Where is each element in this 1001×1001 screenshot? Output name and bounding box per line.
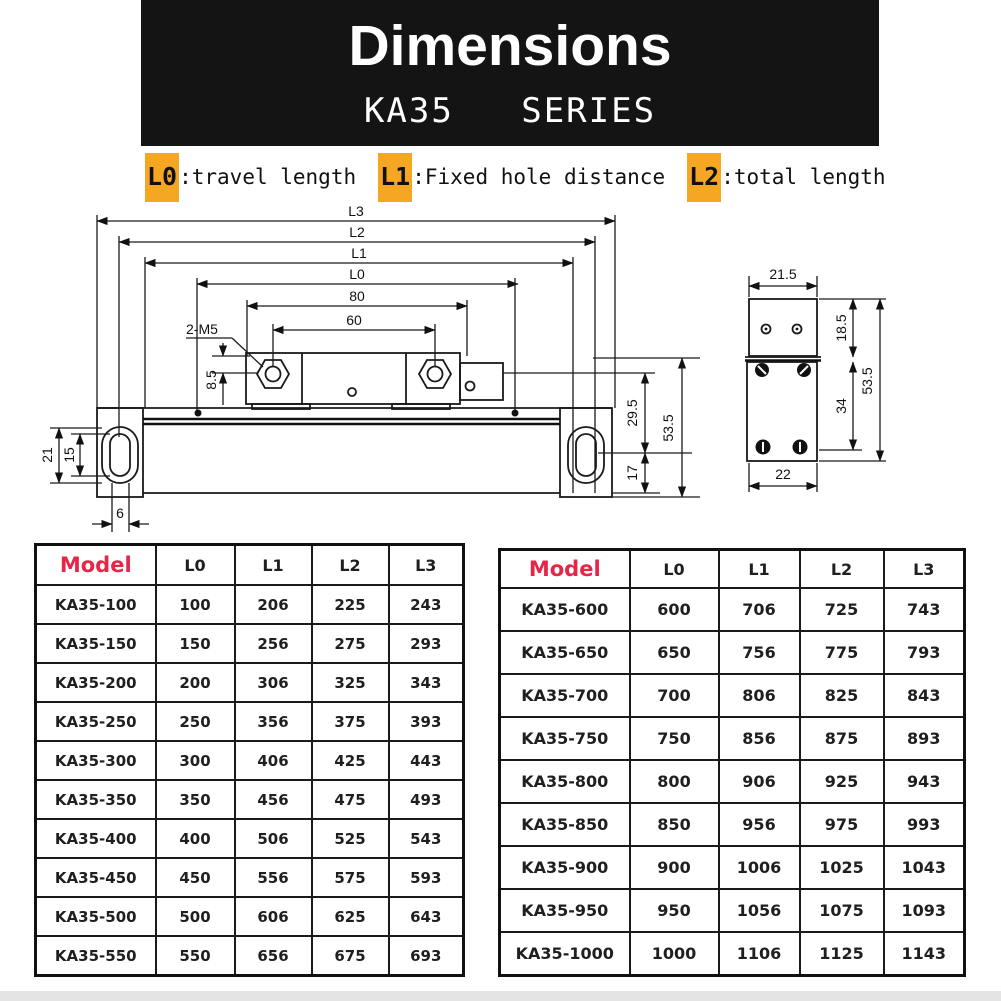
value-cell: 600: [630, 588, 719, 631]
value-cell: 625: [312, 897, 389, 936]
value-cell: 593: [389, 858, 464, 897]
value-cell: 900: [630, 846, 719, 889]
model-cell: KA35-700: [500, 674, 630, 717]
value-cell: 850: [630, 803, 719, 846]
value-cell: 1125: [800, 932, 884, 976]
value-cell: 700: [630, 674, 719, 717]
dim-label-l2: L2: [349, 224, 365, 240]
value-cell: 443: [389, 741, 464, 780]
dim-label-34: 34: [833, 398, 849, 414]
model-cell: KA35-850: [500, 803, 630, 846]
model-cell: KA35-150: [36, 624, 156, 663]
value-cell: 450: [156, 858, 235, 897]
value-cell: 225: [312, 585, 389, 624]
value-cell: 1043: [884, 846, 965, 889]
dim-label-15: 15: [61, 447, 77, 463]
table-left-body: KA35-100100206225243KA35-150150256275293…: [36, 585, 464, 976]
table-row: KA35-850850956975993: [500, 803, 965, 846]
value-cell: 293: [389, 624, 464, 663]
page: Dimensions KA35 SERIES L0:travel length …: [0, 0, 1001, 1001]
table-row: KA35-150150256275293: [36, 624, 464, 663]
value-cell: 306: [235, 663, 312, 702]
value-cell: 350: [156, 780, 235, 819]
legend-item-l0: L0:travel length: [145, 153, 356, 202]
column-header-l0: L0: [156, 545, 235, 586]
model-cell: KA35-800: [500, 760, 630, 803]
table-header-row: Model L0 L1 L2 L3: [36, 545, 464, 586]
dimension-table-right: Model L0 L1 L2 L3 KA35-600600706725743KA…: [498, 548, 966, 977]
model-cell: KA35-650: [500, 631, 630, 674]
table-row: KA35-10001000110611251143: [500, 932, 965, 976]
value-cell: 650: [630, 631, 719, 674]
value-cell: 250: [156, 702, 235, 741]
model-cell: KA35-350: [36, 780, 156, 819]
banner: Dimensions KA35 SERIES: [141, 0, 879, 146]
table-row: KA35-100100206225243: [36, 585, 464, 624]
dim-label-l3: L3: [348, 205, 364, 219]
dim-label-17: 17: [624, 465, 640, 481]
value-cell: 575: [312, 858, 389, 897]
table-row: KA35-550550656675693: [36, 936, 464, 976]
model-cell: KA35-300: [36, 741, 156, 780]
value-cell: 725: [800, 588, 884, 631]
series-subtitle: KA35 SERIES: [364, 91, 656, 131]
value-cell: 806: [719, 674, 800, 717]
value-cell: 856: [719, 717, 800, 760]
value-cell: 943: [884, 760, 965, 803]
dim-label-53-5-front: 53.5: [660, 414, 676, 441]
table-right-body: KA35-600600706725743KA35-650650756775793…: [500, 588, 965, 976]
value-cell: 475: [312, 780, 389, 819]
value-cell: 356: [235, 702, 312, 741]
dim-left-group: 21 15 6: [39, 428, 149, 532]
column-header-model: Model: [500, 550, 630, 589]
value-cell: 550: [156, 936, 235, 976]
model-cell: KA35-950: [500, 889, 630, 932]
column-header-model: Model: [36, 545, 156, 586]
table-row: KA35-900900100610251043: [500, 846, 965, 889]
value-cell: 775: [800, 631, 884, 674]
value-cell: 1093: [884, 889, 965, 932]
value-cell: 975: [800, 803, 884, 846]
table-row: KA35-200200306325343: [36, 663, 464, 702]
scale-rail: [97, 408, 612, 497]
value-cell: 256: [235, 624, 312, 663]
dim-label-l1: L1: [351, 245, 367, 261]
model-cell: KA35-550: [36, 936, 156, 976]
value-cell: 500: [156, 897, 235, 936]
table-row: KA35-450450556575593: [36, 858, 464, 897]
dim-label-29-5: 29.5: [624, 399, 640, 426]
value-cell: 150: [156, 624, 235, 663]
model-cell: KA35-450: [36, 858, 156, 897]
dimension-table-left: Model L0 L1 L2 L3 KA35-100100206225243KA…: [34, 543, 465, 977]
length-dimension-lines: L3 L2 L1 L0 80 60: [97, 205, 615, 330]
value-cell: 1075: [800, 889, 884, 932]
column-header-l3: L3: [884, 550, 965, 589]
table-row: KA35-250250356375393: [36, 702, 464, 741]
connector-block: [460, 363, 503, 400]
slot-left-inner: [110, 434, 130, 476]
value-cell: 1056: [719, 889, 800, 932]
legend-desc-l2: :total length: [721, 165, 885, 189]
legend-item-l1: L1:Fixed hole distance: [378, 153, 665, 202]
model-cell: KA35-900: [500, 846, 630, 889]
value-cell: 906: [719, 760, 800, 803]
side-view: 21.5 18.5 34 53.5 22: [745, 266, 886, 492]
value-cell: 425: [312, 741, 389, 780]
value-cell: 525: [312, 819, 389, 858]
value-cell: 493: [389, 780, 464, 819]
table-row: KA35-700700806825843: [500, 674, 965, 717]
value-cell: 243: [389, 585, 464, 624]
model-cell: KA35-200: [36, 663, 156, 702]
table-row: KA35-300300406425443: [36, 741, 464, 780]
value-cell: 393: [389, 702, 464, 741]
value-cell: 750: [630, 717, 719, 760]
value-cell: 556: [235, 858, 312, 897]
slot-right-inner: [576, 434, 596, 476]
table-right-header: Model L0 L1 L2 L3: [500, 550, 965, 589]
legend-key-l2: L2: [687, 153, 721, 202]
value-cell: 693: [389, 936, 464, 976]
table-row: KA35-400400506525543: [36, 819, 464, 858]
value-cell: 456: [235, 780, 312, 819]
model-cell: KA35-1000: [500, 932, 630, 976]
legend-desc-l1: :Fixed hole distance: [412, 165, 665, 189]
dim-label-18-5: 18.5: [833, 314, 849, 341]
value-cell: 400: [156, 819, 235, 858]
value-cell: 300: [156, 741, 235, 780]
table-row: KA35-750750856875893: [500, 717, 965, 760]
legend-item-l2: L2:total length: [687, 153, 885, 202]
value-cell: 825: [800, 674, 884, 717]
value-cell: 606: [235, 897, 312, 936]
value-cell: 993: [884, 803, 965, 846]
value-cell: 506: [235, 819, 312, 858]
column-header-l2: L2: [800, 550, 884, 589]
value-cell: 1106: [719, 932, 800, 976]
table-row: KA35-950950105610751093: [500, 889, 965, 932]
value-cell: 756: [719, 631, 800, 674]
table-row: KA35-650650756775793: [500, 631, 965, 674]
value-cell: 875: [800, 717, 884, 760]
value-cell: 1000: [630, 932, 719, 976]
dim-label-60: 60: [346, 312, 362, 328]
dim-label-2m5: 2-M5: [186, 321, 218, 337]
model-cell: KA35-750: [500, 717, 630, 760]
value-cell: 925: [800, 760, 884, 803]
technical-drawing: L3 L2 L1 L0 80 60: [0, 205, 1001, 550]
table-row: KA35-800800906925943: [500, 760, 965, 803]
dim-label-l0: L0: [349, 266, 365, 282]
column-header-l1: L1: [235, 545, 312, 586]
value-cell: 543: [389, 819, 464, 858]
value-cell: 343: [389, 663, 464, 702]
value-cell: 956: [719, 803, 800, 846]
table-left-header: Model L0 L1 L2 L3: [36, 545, 464, 586]
dim-label-53-5-side: 53.5: [859, 367, 875, 394]
legend-key-l0: L0: [145, 153, 179, 202]
value-cell: 325: [312, 663, 389, 702]
page-title: Dimensions: [348, 18, 671, 75]
column-header-l2: L2: [312, 545, 389, 586]
value-cell: 1143: [884, 932, 965, 976]
value-cell: 200: [156, 663, 235, 702]
table-row: KA35-600600706725743: [500, 588, 965, 631]
value-cell: 743: [884, 588, 965, 631]
model-cell: KA35-100: [36, 585, 156, 624]
table-header-row: Model L0 L1 L2 L3: [500, 550, 965, 589]
model-cell: KA35-250: [36, 702, 156, 741]
value-cell: 1025: [800, 846, 884, 889]
value-cell: 406: [235, 741, 312, 780]
reading-head: [246, 353, 503, 409]
model-cell: KA35-600: [500, 588, 630, 631]
value-cell: 706: [719, 588, 800, 631]
dim-label-21: 21: [39, 447, 55, 463]
value-cell: 275: [312, 624, 389, 663]
value-cell: 843: [884, 674, 965, 717]
value-cell: 656: [235, 936, 312, 976]
dim-label-21-5: 21.5: [769, 266, 796, 282]
column-header-l3: L3: [389, 545, 464, 586]
value-cell: 100: [156, 585, 235, 624]
table-row: KA35-350350456475493: [36, 780, 464, 819]
dim-right-group: 29.5 17 53.5: [503, 358, 700, 497]
bottom-gray-strip: [0, 991, 1001, 1001]
legend-desc-l0: :travel length: [179, 165, 356, 189]
value-cell: 643: [389, 897, 464, 936]
column-header-l0: L0: [630, 550, 719, 589]
legend: L0:travel length L1:Fixed hole distance …: [145, 151, 885, 203]
legend-key-l1: L1: [378, 153, 412, 202]
value-cell: 206: [235, 585, 312, 624]
value-cell: 800: [630, 760, 719, 803]
dim-label-22: 22: [775, 466, 791, 482]
value-cell: 893: [884, 717, 965, 760]
slot-left-outer: [102, 427, 138, 483]
table-row: KA35-500500606625643: [36, 897, 464, 936]
value-cell: 375: [312, 702, 389, 741]
dim-label-6: 6: [116, 505, 124, 521]
dim-label-8-5: 8.5: [203, 370, 219, 390]
model-cell: KA35-400: [36, 819, 156, 858]
value-cell: 793: [884, 631, 965, 674]
model-cell: KA35-500: [36, 897, 156, 936]
head-cross-section: [749, 299, 817, 356]
value-cell: 950: [630, 889, 719, 932]
dim-label-80: 80: [349, 288, 365, 304]
value-cell: 1006: [719, 846, 800, 889]
value-cell: 675: [312, 936, 389, 976]
column-header-l1: L1: [719, 550, 800, 589]
